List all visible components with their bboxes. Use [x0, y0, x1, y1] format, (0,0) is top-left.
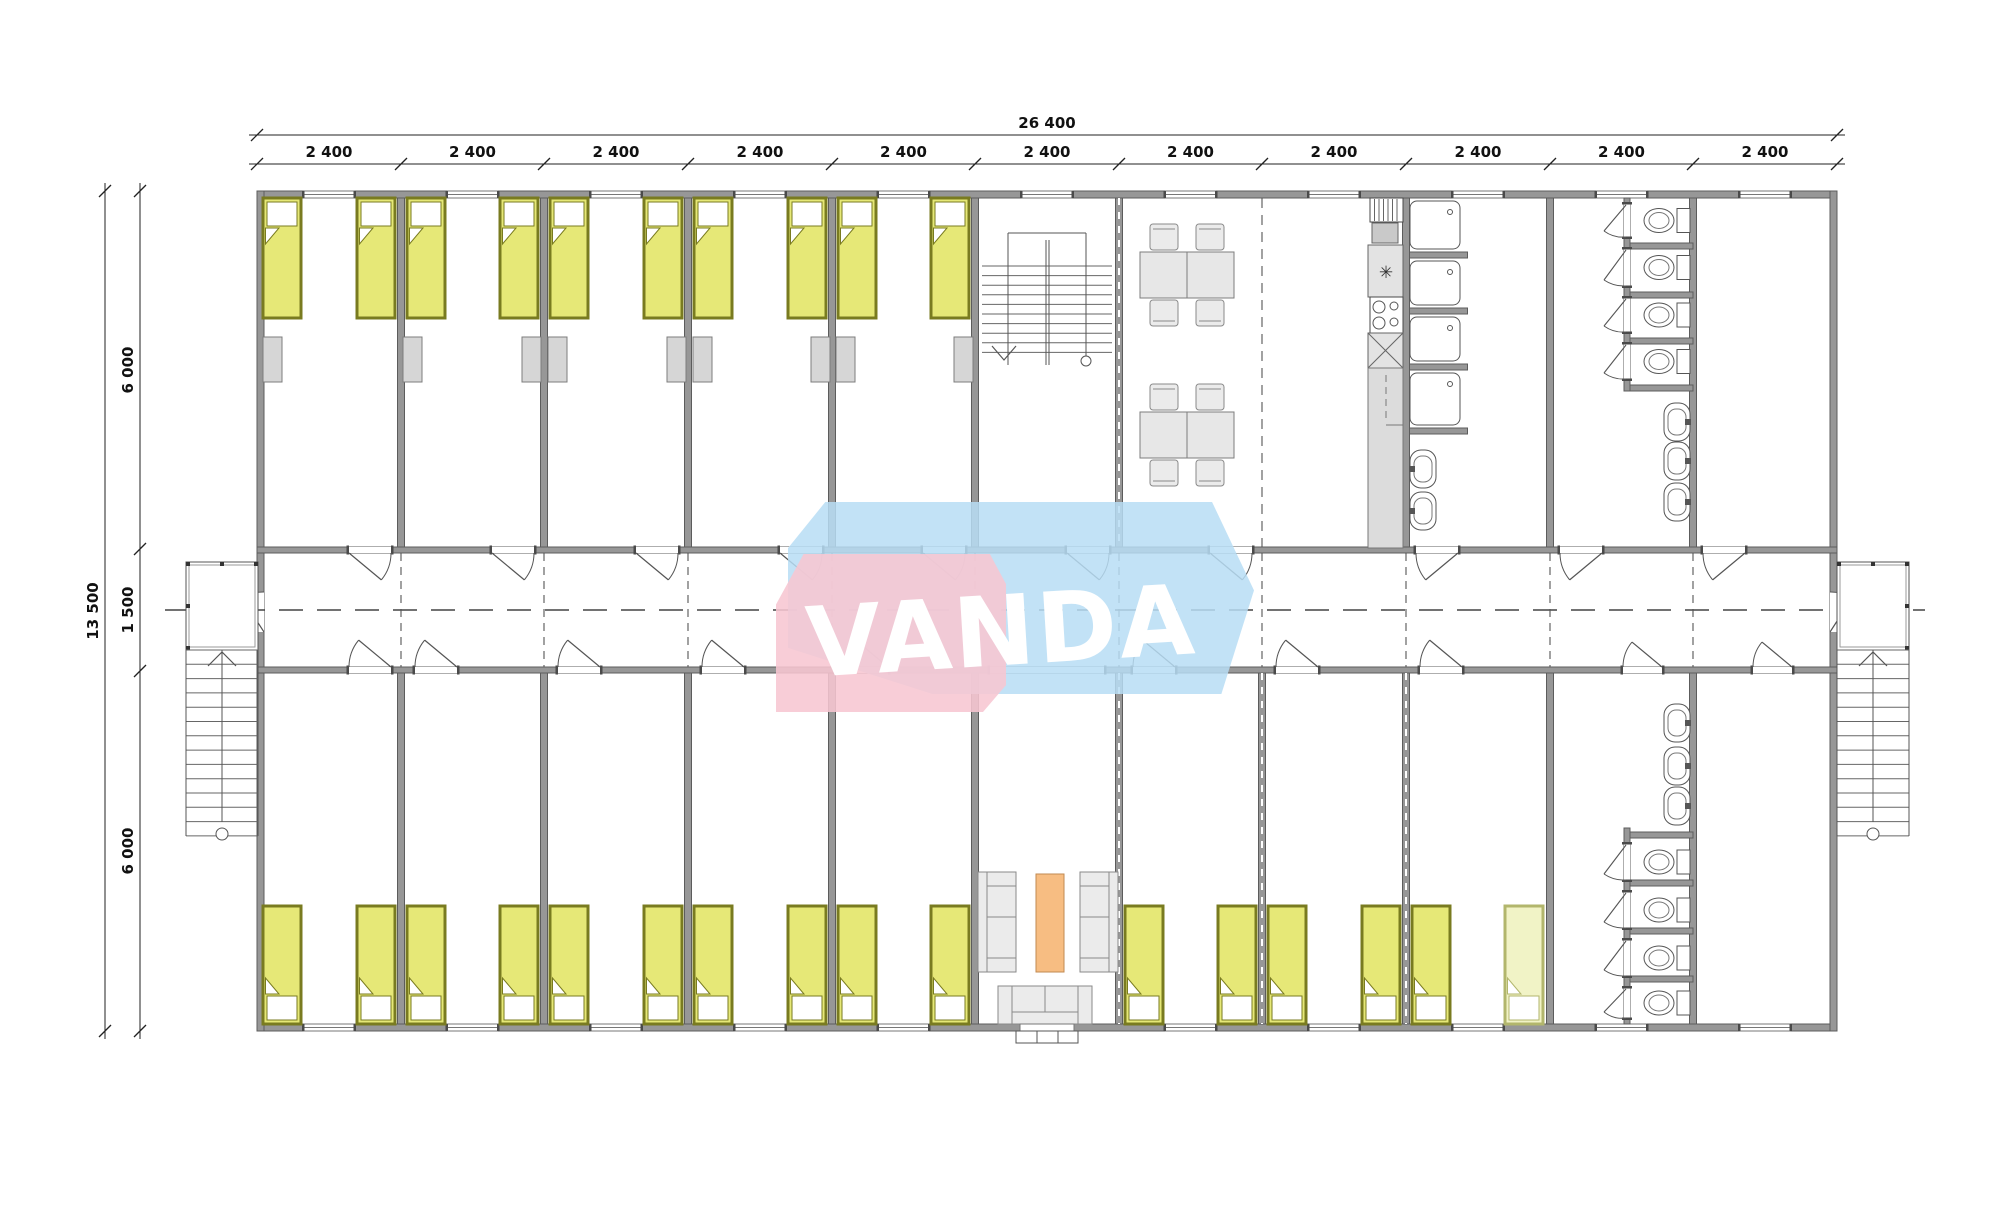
door-opening — [1703, 547, 1745, 553]
interior-wall-lower — [1547, 673, 1554, 1024]
bed-pillow — [1129, 996, 1159, 1020]
door-jamb — [634, 546, 637, 555]
door-jamb — [347, 546, 350, 555]
window-jamb — [1595, 191, 1598, 198]
door-leaf — [1762, 642, 1792, 667]
window-jamb — [1020, 191, 1023, 198]
door-jamb — [1065, 546, 1068, 555]
landing-post — [186, 604, 190, 608]
window-jamb — [1790, 191, 1793, 198]
door-swing-arc — [846, 640, 856, 667]
stall-door-opening — [1624, 249, 1630, 286]
toilet-tank — [1677, 898, 1690, 922]
door-opening — [636, 547, 678, 553]
window-jamb — [1307, 191, 1310, 198]
door-swing-arc — [812, 553, 822, 580]
landing-post — [1905, 604, 1909, 608]
door-swing-arc — [1242, 553, 1252, 580]
bed-pillow — [267, 996, 297, 1020]
bed-pillow — [842, 996, 872, 1020]
wardrobe — [522, 337, 541, 382]
wardrobe — [403, 337, 422, 382]
door-swing-arc — [1703, 553, 1713, 580]
door-swing-arc — [381, 553, 391, 580]
stair-start-marker — [1081, 356, 1091, 366]
door-jamb — [1602, 546, 1605, 555]
door-opening — [349, 667, 391, 673]
wardrobe — [693, 337, 712, 382]
door-jamb — [391, 666, 394, 675]
stall-door-arc — [1604, 231, 1626, 237]
dimension-label-bay: 2 400 — [1167, 143, 1214, 161]
window-jamb — [1738, 1024, 1741, 1031]
chair — [1196, 384, 1224, 410]
door-leaf — [856, 640, 888, 667]
floor-plan-drawing: ✳26 4002 4002 4002 4002 4002 4002 4002 4… — [0, 0, 2000, 1215]
stall-door-leaf — [1604, 845, 1626, 874]
floor-plan-page: ✳26 4002 4002 4002 4002 4002 4002 4002 4… — [0, 0, 2000, 1215]
toilet-stall-wall — [1630, 292, 1693, 298]
bed-pillow — [935, 202, 965, 226]
toilet-stall-wall — [1630, 880, 1693, 886]
wardrobe — [667, 337, 686, 382]
wardrobe — [263, 337, 282, 382]
exterior-landing — [1837, 562, 1909, 650]
stair-direction-arrow — [992, 346, 1016, 360]
door-leaf — [349, 553, 381, 580]
window-jamb — [1215, 191, 1218, 198]
interior-wall-lower — [541, 673, 548, 1024]
chair — [1150, 384, 1178, 410]
interior-wall-lower — [398, 673, 405, 1024]
dimension-label-bay: 2 400 — [593, 143, 640, 161]
wardrobe — [836, 337, 855, 382]
bed-pillow — [792, 202, 822, 226]
stall-door-opening — [1624, 844, 1630, 880]
door-leaf — [425, 640, 457, 667]
door-opening — [349, 547, 391, 553]
window-jamb — [1072, 191, 1075, 198]
bed-pillow — [792, 996, 822, 1020]
toilet-stall-wall — [1630, 338, 1693, 344]
interior-wall-upper — [1690, 198, 1697, 547]
shower-tray — [1410, 317, 1460, 361]
toilet-stall-wall — [1630, 385, 1693, 391]
sofa — [1080, 872, 1118, 972]
exterior-landing — [186, 562, 258, 650]
chair — [1196, 300, 1224, 326]
dimension-label-bay: 2 400 — [306, 143, 353, 161]
toilet-tank — [1677, 350, 1690, 374]
door-leaf — [359, 640, 391, 667]
door-opening — [1416, 547, 1458, 553]
sink-tap — [1409, 466, 1415, 472]
sink-tap — [1685, 499, 1691, 505]
door-opening — [492, 547, 534, 553]
door-leaf — [636, 553, 668, 580]
bed-pillow — [1366, 996, 1396, 1020]
sink-tap — [1685, 763, 1691, 769]
door-swing-arc — [1623, 642, 1632, 667]
wardrobe — [954, 337, 973, 382]
bed-pillow — [698, 202, 728, 226]
door-jamb — [1622, 202, 1632, 205]
door-opening — [780, 547, 822, 553]
shower-tray — [1410, 261, 1460, 305]
landing-post — [254, 562, 258, 566]
chair — [1150, 460, 1178, 486]
coffee-table — [1036, 874, 1064, 972]
stall-door-arc — [1604, 874, 1626, 880]
stall-door-leaf — [1604, 989, 1626, 1012]
door-jamb — [921, 546, 924, 555]
stall-door-opening — [1624, 988, 1630, 1018]
door-leaf — [1210, 553, 1242, 580]
dimension-label-bay: 2 400 — [1455, 143, 1502, 161]
interior-wall-upper — [1403, 198, 1410, 547]
door-jamb — [1175, 666, 1178, 675]
door-leaf — [568, 640, 600, 667]
stall-door-arc — [1604, 1012, 1626, 1018]
stall-door-leaf — [1604, 893, 1626, 922]
door-swing-arc — [702, 640, 712, 667]
door-swing-arc — [1420, 640, 1430, 667]
shower-divider-wall — [1410, 252, 1468, 258]
door-jamb — [1458, 546, 1461, 555]
kitchen-hood-symbol: ✳ — [1379, 263, 1393, 283]
door-jamb — [1622, 986, 1632, 989]
door-opening — [1420, 667, 1462, 673]
door-jamb — [1208, 546, 1211, 555]
door-jamb — [457, 666, 460, 675]
door-swing-arc — [1276, 640, 1286, 667]
bed-pillow — [361, 202, 391, 226]
landing-post — [220, 562, 224, 566]
shower-divider-wall — [1410, 428, 1468, 434]
sink-tap — [1685, 419, 1691, 425]
door-swing-arc — [668, 553, 678, 580]
door-leaf — [780, 553, 812, 580]
landing-post — [1871, 562, 1875, 566]
stall-door-opening — [1624, 204, 1630, 237]
dimension-label-bay: 2 400 — [880, 143, 927, 161]
lounge-opening — [990, 667, 1104, 673]
door-swing-arc — [1753, 642, 1762, 667]
door-opening — [702, 667, 744, 673]
chair — [1150, 224, 1178, 250]
door-jamb — [1622, 938, 1632, 941]
bed-pillow — [411, 996, 441, 1020]
window-jamb — [1790, 1024, 1793, 1031]
door-jamb — [778, 546, 781, 555]
window-jamb — [1646, 191, 1649, 198]
door-opening — [1133, 667, 1175, 673]
dimension-label-bay: 2 400 — [1024, 143, 1071, 161]
door-jamb — [1318, 666, 1321, 675]
shower-tray — [1410, 373, 1460, 425]
stall-door-leaf — [1604, 941, 1626, 970]
landing-post — [1837, 562, 1841, 566]
chair — [1196, 224, 1224, 250]
stall-door-arc — [1604, 970, 1626, 976]
door-leaf — [1430, 640, 1462, 667]
interior-wall-lower — [972, 673, 979, 1024]
shower-divider-wall — [1410, 308, 1468, 314]
landing-post — [186, 562, 190, 566]
door-jamb — [1622, 247, 1632, 250]
sink-tap — [1685, 720, 1691, 726]
bed-pillow — [1222, 996, 1252, 1020]
door-leaf — [712, 640, 744, 667]
door-leaf — [1067, 553, 1099, 580]
toilet-stall-wall — [1630, 243, 1693, 249]
bed-pillow — [698, 996, 728, 1020]
door-opening — [1753, 667, 1792, 673]
dimension-label-total-width: 26 400 — [1018, 114, 1075, 132]
toilet-tank — [1677, 946, 1690, 970]
door-jamb — [744, 666, 747, 675]
bed-pillow — [504, 996, 534, 1020]
dimension-label-segment: 1 500 — [119, 587, 137, 634]
landing-post — [186, 646, 190, 650]
stall-door-opening — [1624, 940, 1630, 976]
door-leaf — [1426, 553, 1458, 580]
chair — [1150, 300, 1178, 326]
bed-pillow — [504, 202, 534, 226]
stall-door-opening — [1624, 892, 1630, 928]
landing-post — [1905, 562, 1909, 566]
dimension-label-bay: 2 400 — [1742, 143, 1789, 161]
sofa — [978, 872, 1016, 972]
bed-pillow — [648, 202, 678, 226]
door-swing-arc — [1560, 553, 1570, 580]
bed-pillow — [554, 996, 584, 1020]
stall-door-leaf — [1604, 299, 1626, 326]
kitchen-unit — [1372, 223, 1398, 243]
door-leaf — [1570, 553, 1602, 580]
door-swing-arc — [1099, 553, 1109, 580]
toilet-stall-wall — [1630, 832, 1693, 838]
bed-pillow — [1416, 996, 1446, 1020]
door-opening — [1560, 547, 1602, 553]
interior-wall-upper — [1547, 198, 1554, 547]
entrance-door-opening — [1020, 1024, 1074, 1031]
dimension-label-bay: 2 400 — [1311, 143, 1358, 161]
door-leaf — [1632, 642, 1662, 667]
bed-pillow — [1272, 996, 1302, 1020]
door-jamb — [1745, 546, 1748, 555]
window-jamb — [1738, 191, 1741, 198]
door-swing-arc — [955, 553, 965, 580]
dimension-label-segment: 6 000 — [119, 828, 137, 875]
interior-wall-upper — [541, 198, 548, 547]
door-jamb — [1662, 666, 1665, 675]
toilet-tank — [1677, 209, 1690, 233]
window-jamb — [1595, 1024, 1598, 1031]
door-opening — [558, 667, 600, 673]
window-jamb — [1451, 191, 1454, 198]
stair-start-marker — [1867, 828, 1879, 840]
door-swing-arc — [415, 640, 425, 667]
door-jamb — [1622, 296, 1632, 299]
stall-door-leaf — [1604, 205, 1626, 231]
toilet-stall-wall — [1630, 976, 1693, 982]
wardrobe — [811, 337, 830, 382]
door-leaf — [1713, 553, 1745, 580]
door-leaf — [492, 553, 524, 580]
bed-pillow — [554, 202, 584, 226]
shower-divider-wall — [1410, 364, 1468, 370]
stall-door-arc — [1604, 373, 1626, 379]
kitchen-counter — [1368, 368, 1403, 548]
sink-tap — [1409, 508, 1415, 514]
sink-tap — [1685, 458, 1691, 464]
shower-tray — [1410, 201, 1460, 249]
chair — [1196, 460, 1224, 486]
door-swing-arc — [1133, 640, 1143, 667]
window-jamb — [1646, 1024, 1649, 1031]
toilet-tank — [1677, 850, 1690, 874]
door-jamb — [1622, 842, 1632, 845]
dimension-label-bay: 2 400 — [737, 143, 784, 161]
wardrobe — [548, 337, 567, 382]
dimension-label-bay: 2 400 — [1598, 143, 1645, 161]
door-jamb — [1792, 666, 1795, 675]
door-swing-arc — [524, 553, 534, 580]
entrance-step — [1016, 1031, 1078, 1043]
dimension-label-total-height: 13 500 — [84, 582, 102, 639]
interior-wall-lower — [685, 673, 692, 1024]
toilet-tank — [1677, 303, 1690, 327]
door-opening — [1067, 547, 1109, 553]
bed-pillow — [648, 996, 678, 1020]
door-swing-arc — [1416, 553, 1426, 580]
dimension-label-bay: 2 400 — [449, 143, 496, 161]
window-jamb — [1164, 191, 1167, 198]
toilet-tank — [1677, 991, 1690, 1015]
stall-door-arc — [1604, 922, 1626, 928]
door-jamb — [888, 666, 891, 675]
bed-pillow — [935, 996, 965, 1020]
door-jamb — [1622, 890, 1632, 893]
door-opening — [415, 667, 457, 673]
bed-pillow — [267, 202, 297, 226]
stall-door-opening — [1624, 344, 1630, 379]
bed-pillow — [842, 202, 872, 226]
stair-start-marker — [216, 828, 228, 840]
door-jamb — [1104, 666, 1107, 675]
bed-pillow — [411, 202, 441, 226]
door-jamb — [988, 666, 991, 675]
door-swing-arc — [349, 640, 359, 667]
door-opening — [1210, 547, 1252, 553]
toilet-tank — [1677, 256, 1690, 280]
door-jamb — [1462, 666, 1465, 675]
door-swing-arc — [558, 640, 568, 667]
stall-door-leaf — [1604, 345, 1626, 373]
stall-door-opening — [1624, 298, 1630, 332]
stall-door-arc — [1604, 326, 1626, 332]
door-leaf — [1286, 640, 1318, 667]
stall-door-leaf — [1604, 250, 1626, 280]
door-jamb — [1622, 342, 1632, 345]
landing-post — [1905, 646, 1909, 650]
door-opening — [1276, 667, 1318, 673]
door-leaf — [923, 553, 955, 580]
door-opening — [923, 547, 965, 553]
interior-wall-lower — [829, 673, 836, 1024]
toilet-stall-wall — [1630, 928, 1693, 934]
door-opening — [846, 667, 888, 673]
door-jamb — [490, 546, 493, 555]
window-jamb — [1503, 191, 1506, 198]
window-jamb — [1359, 191, 1362, 198]
door-jamb — [600, 666, 603, 675]
bed-pillow — [361, 996, 391, 1020]
door-opening — [1623, 667, 1662, 673]
stall-door-arc — [1604, 280, 1626, 286]
dimension-label-segment: 6 000 — [119, 347, 137, 394]
sink-tap — [1685, 803, 1691, 809]
bed-pillow — [1509, 996, 1539, 1020]
door-leaf — [1143, 640, 1175, 667]
